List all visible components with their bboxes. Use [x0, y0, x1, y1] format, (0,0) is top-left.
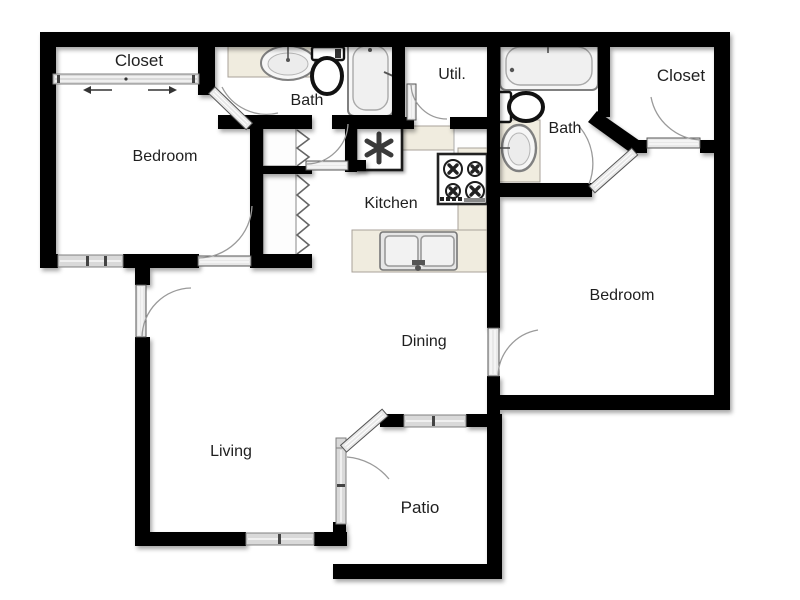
slide-arrow-left-icon	[83, 86, 112, 94]
kitchen-sink-icon	[380, 232, 457, 271]
door-util	[407, 84, 447, 120]
hall-closets	[263, 128, 309, 256]
bath-left-tub-icon	[348, 40, 393, 116]
bath-right-sink-icon	[500, 125, 536, 171]
door-closet-right	[647, 97, 700, 148]
window-bedroom-left	[58, 255, 123, 267]
floor-plan-svg: Closet Bedroom Bath Util. Bath Closet Ki…	[0, 0, 800, 600]
label-living: Living	[210, 443, 252, 460]
bifold-door-icon	[297, 175, 309, 254]
label-bedroom-left: Bedroom	[133, 148, 198, 165]
stove-icon	[438, 154, 487, 204]
floor-plan: Closet Bedroom Bath Util. Bath Closet Ki…	[0, 0, 800, 600]
label-patio: Patio	[401, 498, 440, 517]
bath-right-toilet-icon	[498, 92, 543, 122]
slide-arrow-right-icon	[148, 86, 177, 94]
door-hall-bath	[306, 124, 348, 170]
label-kitchen: Kitchen	[364, 195, 417, 212]
window-living	[246, 533, 314, 545]
window-patio-top	[404, 415, 466, 427]
door-bedroom-right	[488, 328, 538, 376]
label-util: Util.	[438, 66, 466, 83]
label-closet-right: Closet	[657, 66, 705, 85]
window-patio-left	[336, 438, 346, 524]
kitchen-counter-top	[402, 126, 456, 150]
bath-left-toilet-icon	[312, 47, 344, 94]
label-closet-left: Closet	[115, 51, 163, 70]
door-entry-living	[136, 285, 191, 337]
door-patio-diagonal	[341, 409, 389, 479]
bath-left-sink-icon	[261, 46, 315, 80]
bath-right-tub-icon	[500, 41, 598, 90]
sliding-closet-door-icon	[53, 74, 199, 94]
closet-box-upper	[263, 128, 296, 166]
closet-box-lower	[263, 173, 296, 256]
door-bedroom-left	[198, 206, 252, 266]
label-dining: Dining	[401, 333, 446, 350]
label-bath-right: Bath	[549, 120, 582, 137]
label-bedroom-right: Bedroom	[590, 287, 655, 304]
label-bath-left: Bath	[291, 92, 324, 109]
